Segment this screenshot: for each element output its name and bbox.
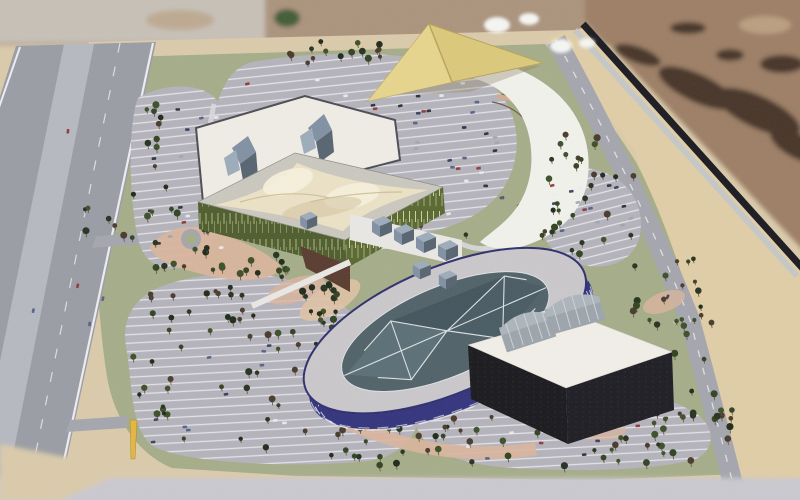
site-model-scene xyxy=(0,0,800,500)
film-grain xyxy=(0,0,800,500)
model-photo xyxy=(0,0,800,500)
